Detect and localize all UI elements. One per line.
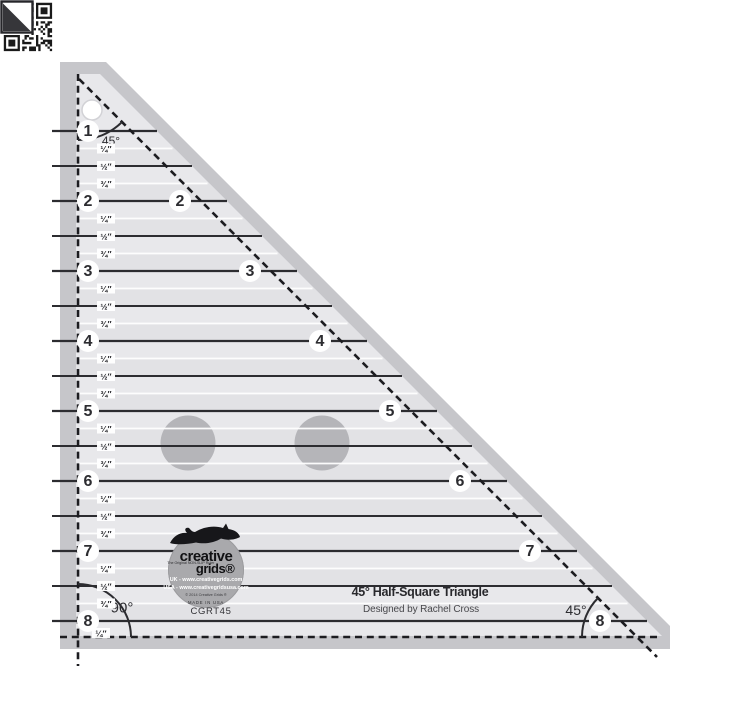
fraction-label: ½″ bbox=[100, 442, 111, 452]
brand-copyright: © 2014 Creative Grids ® bbox=[185, 593, 226, 597]
fraction-label: ½″ bbox=[100, 372, 111, 382]
fraction-label: ½″ bbox=[100, 232, 111, 242]
fraction-label: ½″ bbox=[100, 162, 111, 172]
grip-disc-left bbox=[161, 416, 216, 471]
fraction-label: ¾″ bbox=[100, 249, 111, 259]
brand-name-bottom: grids® bbox=[196, 561, 234, 576]
designer-credit: Designed by Rachel Cross bbox=[363, 604, 479, 615]
product-title: 45° Half-Square Triangle bbox=[352, 585, 489, 599]
hanging-hole bbox=[82, 100, 102, 120]
fraction-label: ¼″ bbox=[100, 354, 111, 364]
fraction-label: ¼″ bbox=[95, 629, 106, 639]
fraction-label: ¼″ bbox=[100, 284, 111, 294]
inch-number-hyp-2: 2 bbox=[176, 193, 185, 210]
fraction-label: ¼″ bbox=[100, 214, 111, 224]
half-square-triangle-icon bbox=[0, 0, 34, 34]
inch-number-left-5: 5 bbox=[84, 403, 93, 420]
ruler-product-photo: 45°90°45°123456782345678¼″½″¾″¼″½″¾″¼″½″… bbox=[0, 0, 750, 715]
fraction-label: ¼″ bbox=[100, 144, 111, 154]
inch-number-left-3: 3 bbox=[84, 263, 93, 280]
fraction-label: ¾″ bbox=[100, 459, 111, 469]
fraction-label: ¼″ bbox=[100, 424, 111, 434]
inch-number-hyp-6: 6 bbox=[456, 473, 465, 490]
brand-logo: creative The Original NON-SLIP Ruler gri… bbox=[168, 532, 244, 608]
fraction-label: ¼″ bbox=[100, 564, 111, 574]
fraction-label: ¾″ bbox=[100, 319, 111, 329]
inch-number-left-4: 4 bbox=[84, 333, 93, 350]
fraction-label: ½″ bbox=[100, 512, 111, 522]
inch-number-hyp-4: 4 bbox=[316, 333, 325, 350]
brand-made-in: MADE IN USA bbox=[188, 600, 224, 605]
brand-uk-url: UK - www.creativegrids.com bbox=[170, 577, 243, 583]
inch-number-hyp-3: 3 bbox=[246, 263, 255, 280]
brand-usa-url: USA - www.creativegridsusa.com bbox=[163, 585, 248, 591]
grip-disc-right bbox=[295, 416, 350, 471]
inch-number-left-6: 6 bbox=[84, 473, 93, 490]
fraction-label: ¼″ bbox=[100, 494, 111, 504]
inch-number-left-2: 2 bbox=[84, 193, 93, 210]
inch-number-left-1: 1 bbox=[84, 123, 93, 140]
fraction-label: ¾″ bbox=[100, 389, 111, 399]
inch-number-hyp-5: 5 bbox=[386, 403, 395, 420]
fraction-label: ¾″ bbox=[100, 179, 111, 189]
fox-logo-icon bbox=[168, 523, 244, 547]
fraction-label: ½″ bbox=[100, 302, 111, 312]
fraction-label: ¾″ bbox=[100, 599, 111, 609]
inch-number-left-7: 7 bbox=[84, 543, 93, 560]
inch-number-left-8: 8 bbox=[84, 613, 93, 630]
bottom-right-angle-label: 45° bbox=[565, 602, 586, 618]
inch-number-hyp-7: 7 bbox=[526, 543, 535, 560]
inch-number-hyp-8: 8 bbox=[596, 613, 605, 630]
fraction-label: ½″ bbox=[100, 582, 111, 592]
model-number: CGRT45 bbox=[191, 606, 232, 617]
fraction-label: ¾″ bbox=[100, 529, 111, 539]
